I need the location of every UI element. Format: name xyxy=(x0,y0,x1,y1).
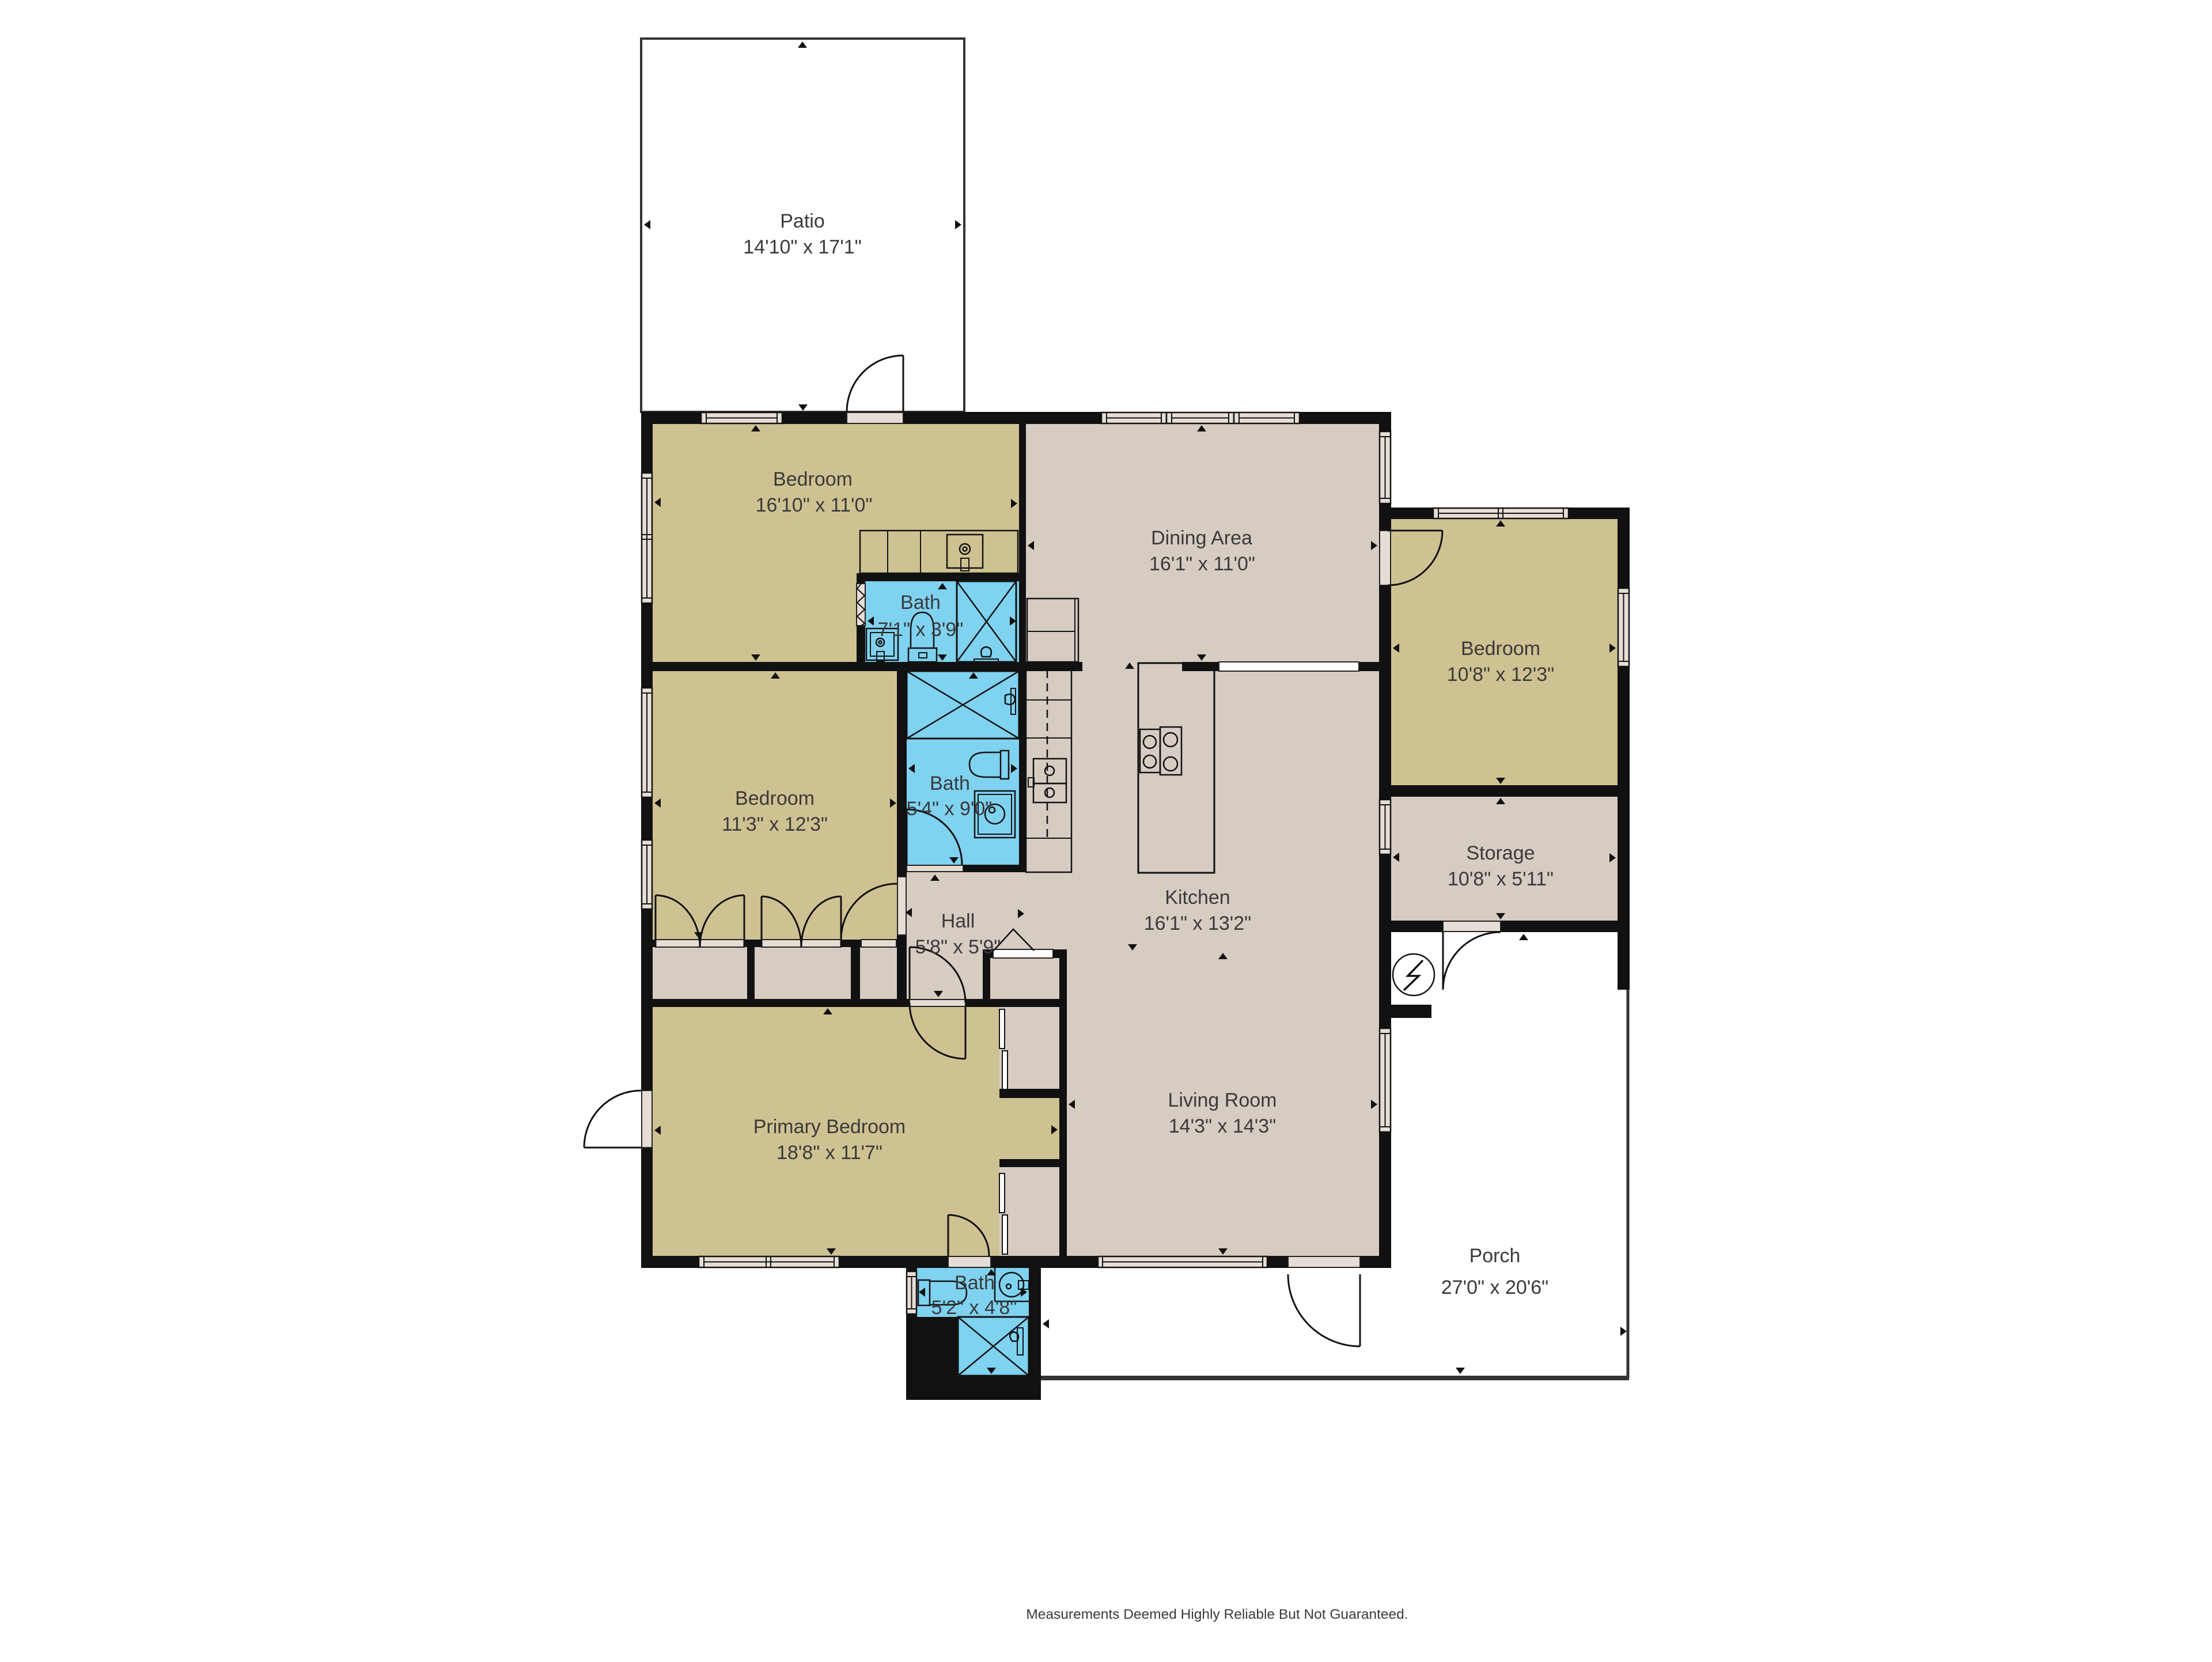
svg-text:16'1" x 11'0": 16'1" x 11'0" xyxy=(1149,553,1255,575)
svg-text:5'8" x 5'9": 5'8" x 5'9" xyxy=(915,936,1001,958)
svg-text:7'1" x 3'9": 7'1" x 3'9" xyxy=(878,619,964,641)
svg-text:18'8" x 11'7": 18'8" x 11'7" xyxy=(777,1142,882,1164)
svg-text:Kitchen: Kitchen xyxy=(1165,887,1230,908)
svg-text:Bedroom: Bedroom xyxy=(1461,638,1540,660)
svg-text:Hall: Hall xyxy=(941,910,975,932)
svg-text:Porch: Porch xyxy=(1469,1245,1521,1267)
svg-text:14'10" x 17'1": 14'10" x 17'1" xyxy=(743,236,861,258)
svg-text:27'0" x 20'6": 27'0" x 20'6" xyxy=(1441,1277,1548,1298)
svg-text:Patio: Patio xyxy=(780,210,825,232)
svg-text:5'4" x 9'0": 5'4" x 9'0" xyxy=(907,798,993,820)
svg-text:Bath: Bath xyxy=(955,1272,995,1294)
svg-text:10'8" x 12'3": 10'8" x 12'3" xyxy=(1447,664,1554,686)
svg-text:Bath: Bath xyxy=(930,773,970,794)
svg-text:Dining Area: Dining Area xyxy=(1151,527,1252,549)
svg-text:14'3" x 14'3": 14'3" x 14'3" xyxy=(1169,1115,1276,1137)
svg-text:16'10" x 11'0": 16'10" x 11'0" xyxy=(756,494,873,516)
svg-text:Bedroom: Bedroom xyxy=(735,788,815,809)
svg-text:10'8" x 5'11": 10'8" x 5'11" xyxy=(1448,868,1554,890)
svg-text:16'1" x 13'2": 16'1" x 13'2" xyxy=(1144,913,1251,934)
svg-text:11'3" x 12'3": 11'3" x 12'3" xyxy=(722,813,828,835)
svg-text:Bedroom: Bedroom xyxy=(773,468,853,490)
svg-text:Primary Bedroom: Primary Bedroom xyxy=(753,1116,906,1138)
svg-text:Bath: Bath xyxy=(900,592,941,614)
svg-text:Storage: Storage xyxy=(1466,842,1535,864)
svg-text:Measurements Deemed Highly Rel: Measurements Deemed Highly Reliable But … xyxy=(1026,1607,1408,1622)
svg-text:Living Room: Living Room xyxy=(1168,1089,1277,1111)
svg-text:5'2" x 4'8": 5'2" x 4'8" xyxy=(931,1297,1017,1319)
